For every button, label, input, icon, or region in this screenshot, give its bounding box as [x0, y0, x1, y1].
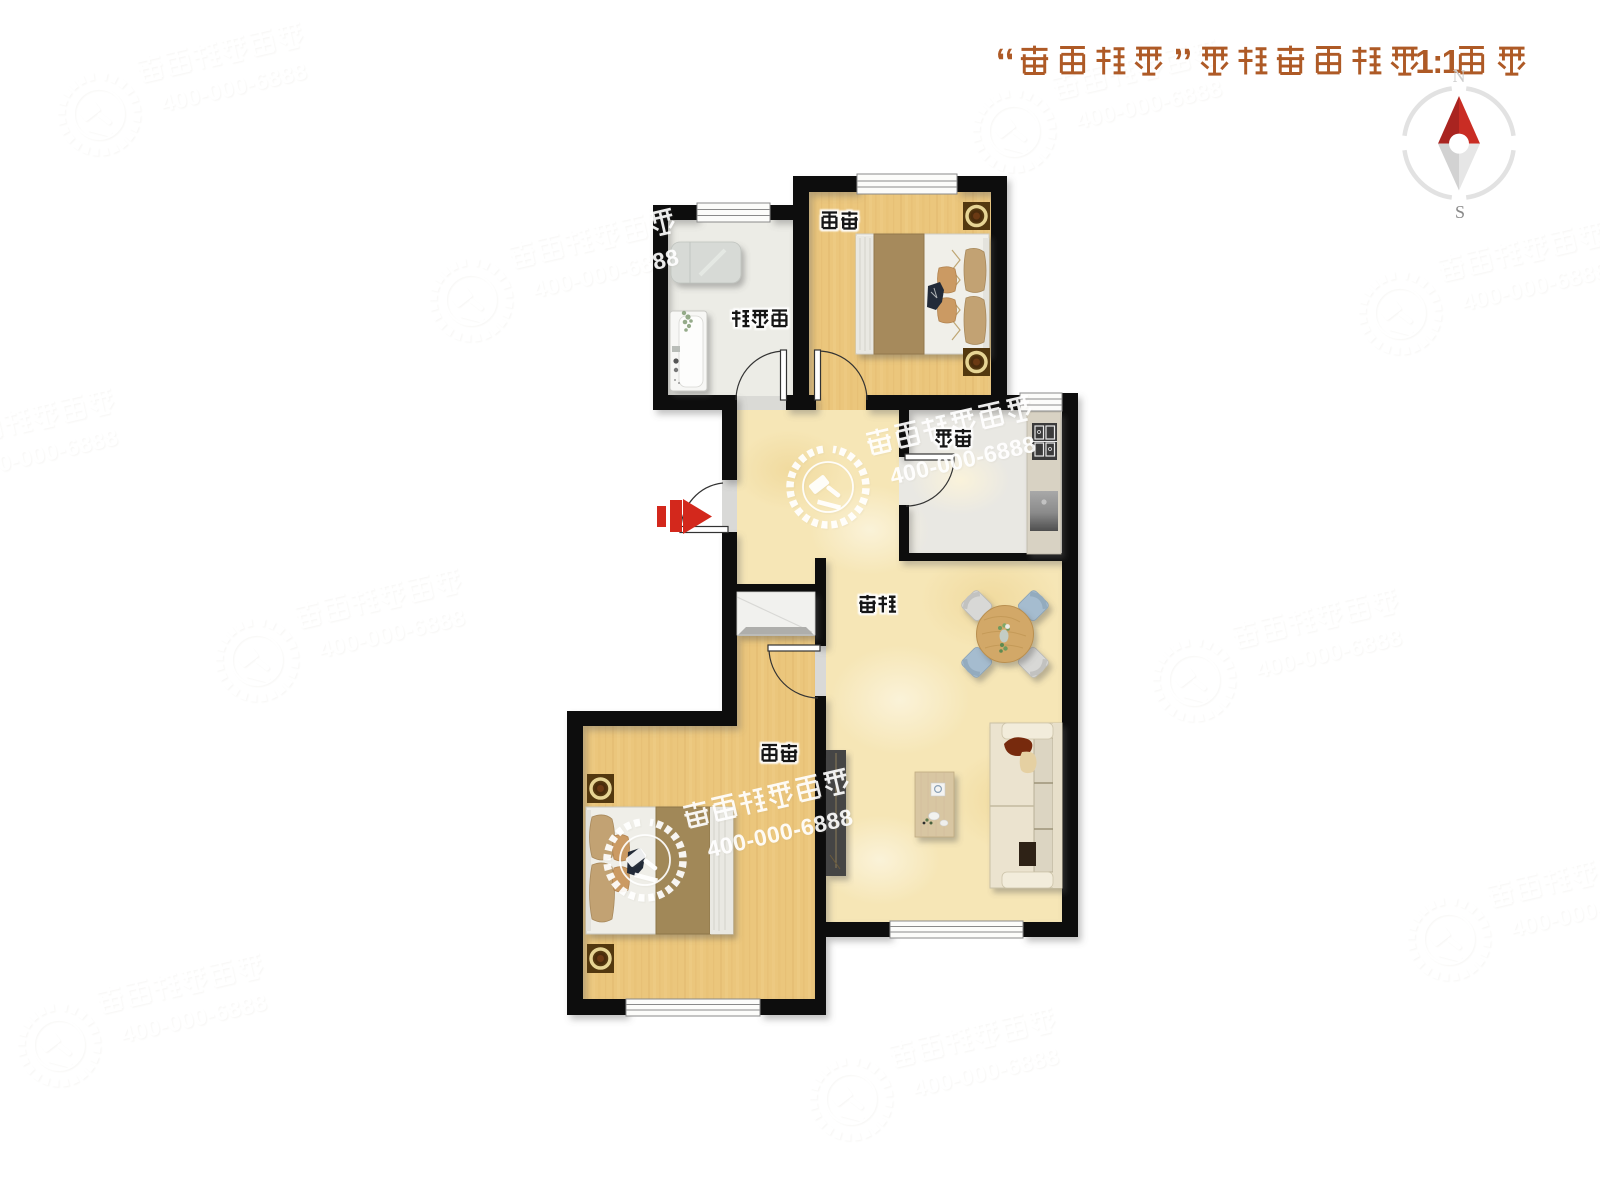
svg-text:S: S — [1455, 202, 1465, 222]
svg-text:N: N — [1453, 66, 1466, 86]
